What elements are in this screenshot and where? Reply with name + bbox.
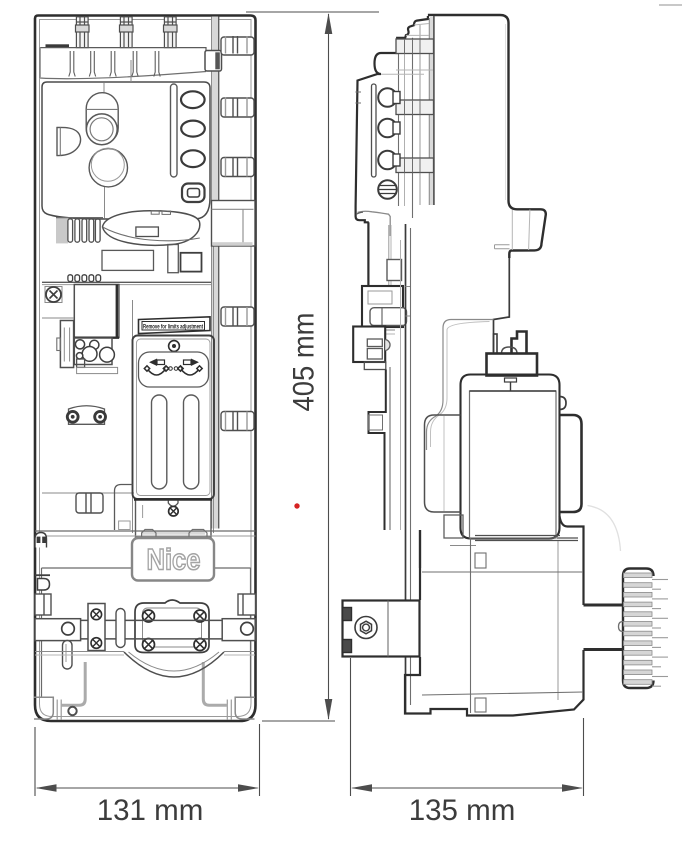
svg-text:Nice: Nice	[147, 544, 201, 577]
svg-text:Remove for limits adjustment: Remove for limits adjustment	[143, 324, 203, 331]
svg-text:135 mm: 135 mm	[409, 794, 516, 827]
svg-text:131 mm: 131 mm	[97, 794, 204, 827]
svg-text:405 mm: 405 mm	[288, 313, 321, 412]
